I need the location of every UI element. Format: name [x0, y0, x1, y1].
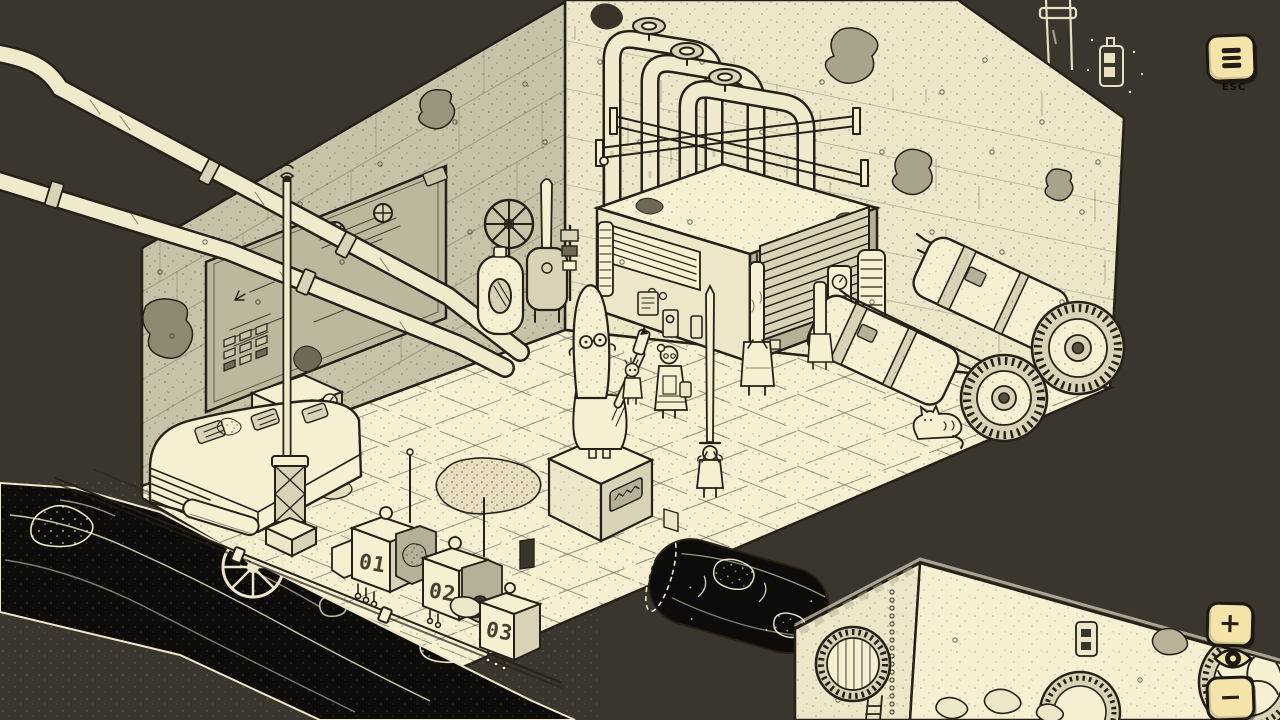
flywheel-front[interactable]: [961, 355, 1047, 441]
minus-icon: −: [1219, 683, 1243, 711]
zoom-in-button[interactable]: +: [1205, 601, 1254, 647]
menu-button[interactable]: [1205, 33, 1257, 83]
zoom-out-button[interactable]: −: [1205, 675, 1256, 720]
isometric-scene: 01 02 03: [0, 0, 1280, 720]
plus-icon: +: [1218, 609, 1241, 637]
porthole[interactable]: [816, 627, 890, 701]
block-switch[interactable]: [1076, 622, 1097, 656]
menu-key-hint: ESC: [1212, 82, 1256, 93]
pump-01-label: 01: [357, 549, 388, 577]
board-valve-wheel-2[interactable]: [374, 204, 392, 222]
eye-icon[interactable]: [1213, 644, 1253, 673]
game-viewport: 01 02 03: [0, 0, 1280, 720]
pump-03-label: 03: [484, 617, 515, 645]
radiator-panel: [598, 222, 613, 296]
hamburger-menu-icon: [1221, 48, 1241, 68]
flywheel-rear[interactable]: [1032, 302, 1124, 394]
